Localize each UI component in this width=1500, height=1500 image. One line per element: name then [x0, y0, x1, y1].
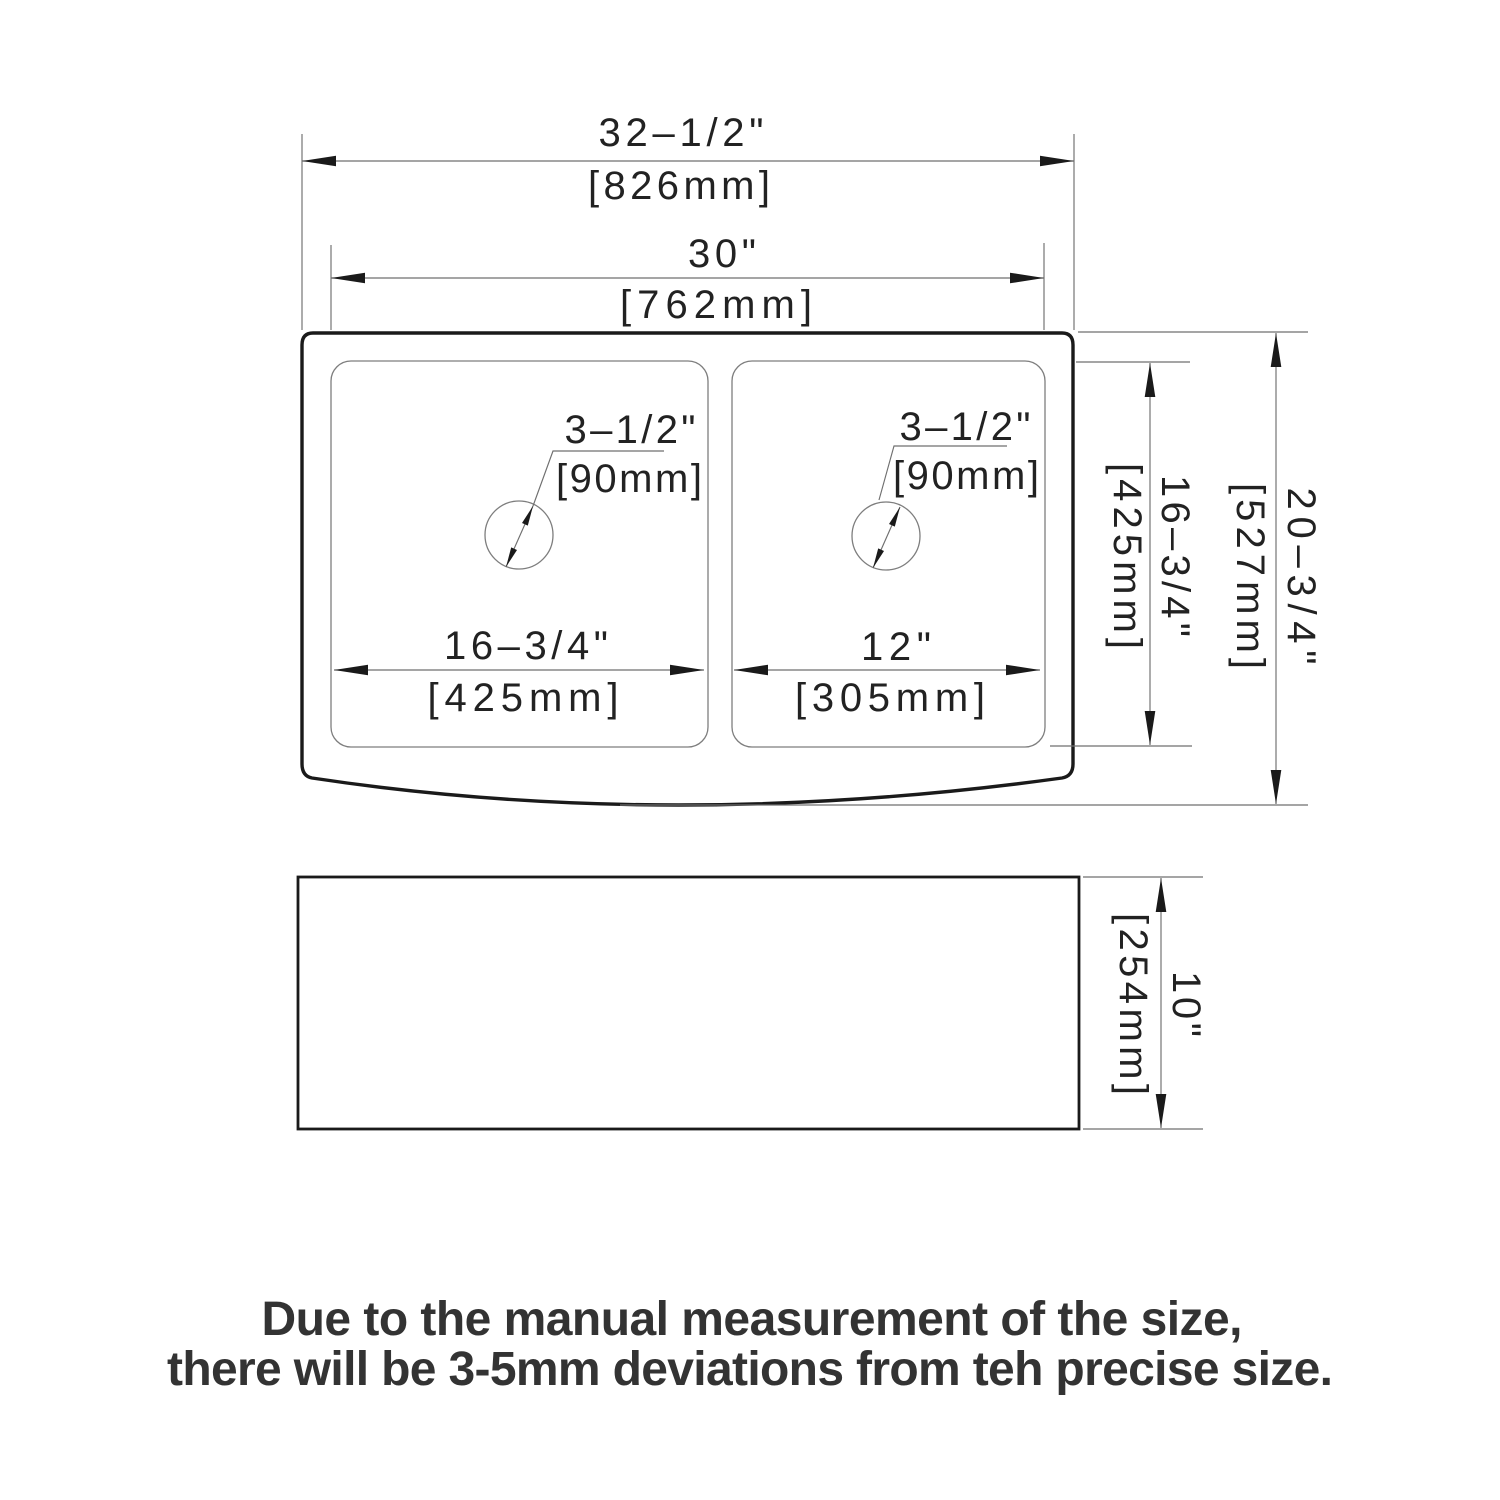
- svg-text:12": 12": [861, 625, 931, 669]
- svg-text:[305mm]: [305mm]: [795, 676, 985, 720]
- svg-text:[826mm]: [826mm]: [588, 164, 770, 208]
- svg-text:[90mm]: [90mm]: [556, 457, 702, 501]
- svg-text:[762mm]: [762mm]: [620, 283, 812, 327]
- svg-text:[254mm]: [254mm]: [1111, 913, 1155, 1095]
- svg-text:3–1/2": 3–1/2": [565, 408, 696, 452]
- svg-text:[527mm]: [527mm]: [1228, 483, 1272, 669]
- svg-text:3–1/2": 3–1/2": [900, 405, 1031, 449]
- svg-text:30": 30": [688, 232, 756, 276]
- svg-text:[425mm]: [425mm]: [1105, 463, 1149, 649]
- svg-text:Due to the manual measurement: Due to the manual measurement of the siz…: [262, 1293, 1243, 1346]
- svg-text:[425mm]: [425mm]: [428, 676, 619, 720]
- svg-text:[90mm]: [90mm]: [893, 454, 1039, 498]
- svg-text:10": 10": [1164, 971, 1208, 1037]
- svg-text:there will be 3-5mm deviations: there will be 3-5mm deviations from teh …: [167, 1343, 1333, 1396]
